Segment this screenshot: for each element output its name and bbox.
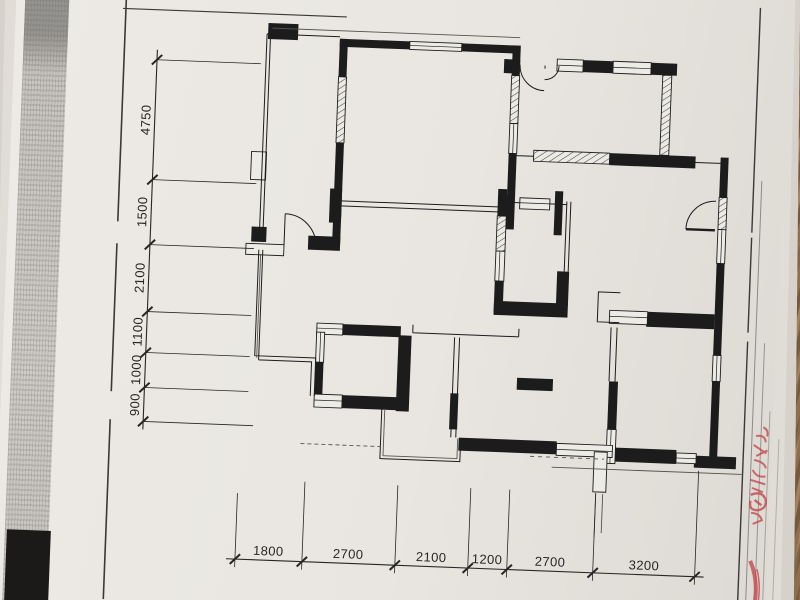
dim-bottom-1200: 1200 (461, 551, 514, 568)
dim-left-2100: 2100 (131, 251, 148, 304)
sheet-frame-lines (100, 0, 795, 600)
red-stamp-mark (745, 427, 769, 600)
floor-plan-drawing (0, 0, 800, 600)
dim-left-1500: 1500 (134, 186, 151, 239)
window-openings (237, 35, 733, 496)
dim-bottom-1800: 1800 (242, 542, 295, 559)
drawing-sheet: 4750 1500 2100 1100 1000 900 1800 2700 2… (0, 0, 800, 600)
dim-bottom-3200: 3200 (618, 557, 671, 574)
dim-bottom-2100: 2100 (405, 549, 458, 566)
dim-left-4750: 4750 (137, 94, 154, 147)
dim-left-900: 900 (126, 378, 143, 431)
dim-bottom-2700b: 2700 (524, 553, 577, 570)
photographed-floor-plan-scene: 4750 1500 2100 1100 1000 900 1800 2700 2… (0, 0, 800, 600)
dim-bottom-2700: 2700 (322, 545, 375, 562)
